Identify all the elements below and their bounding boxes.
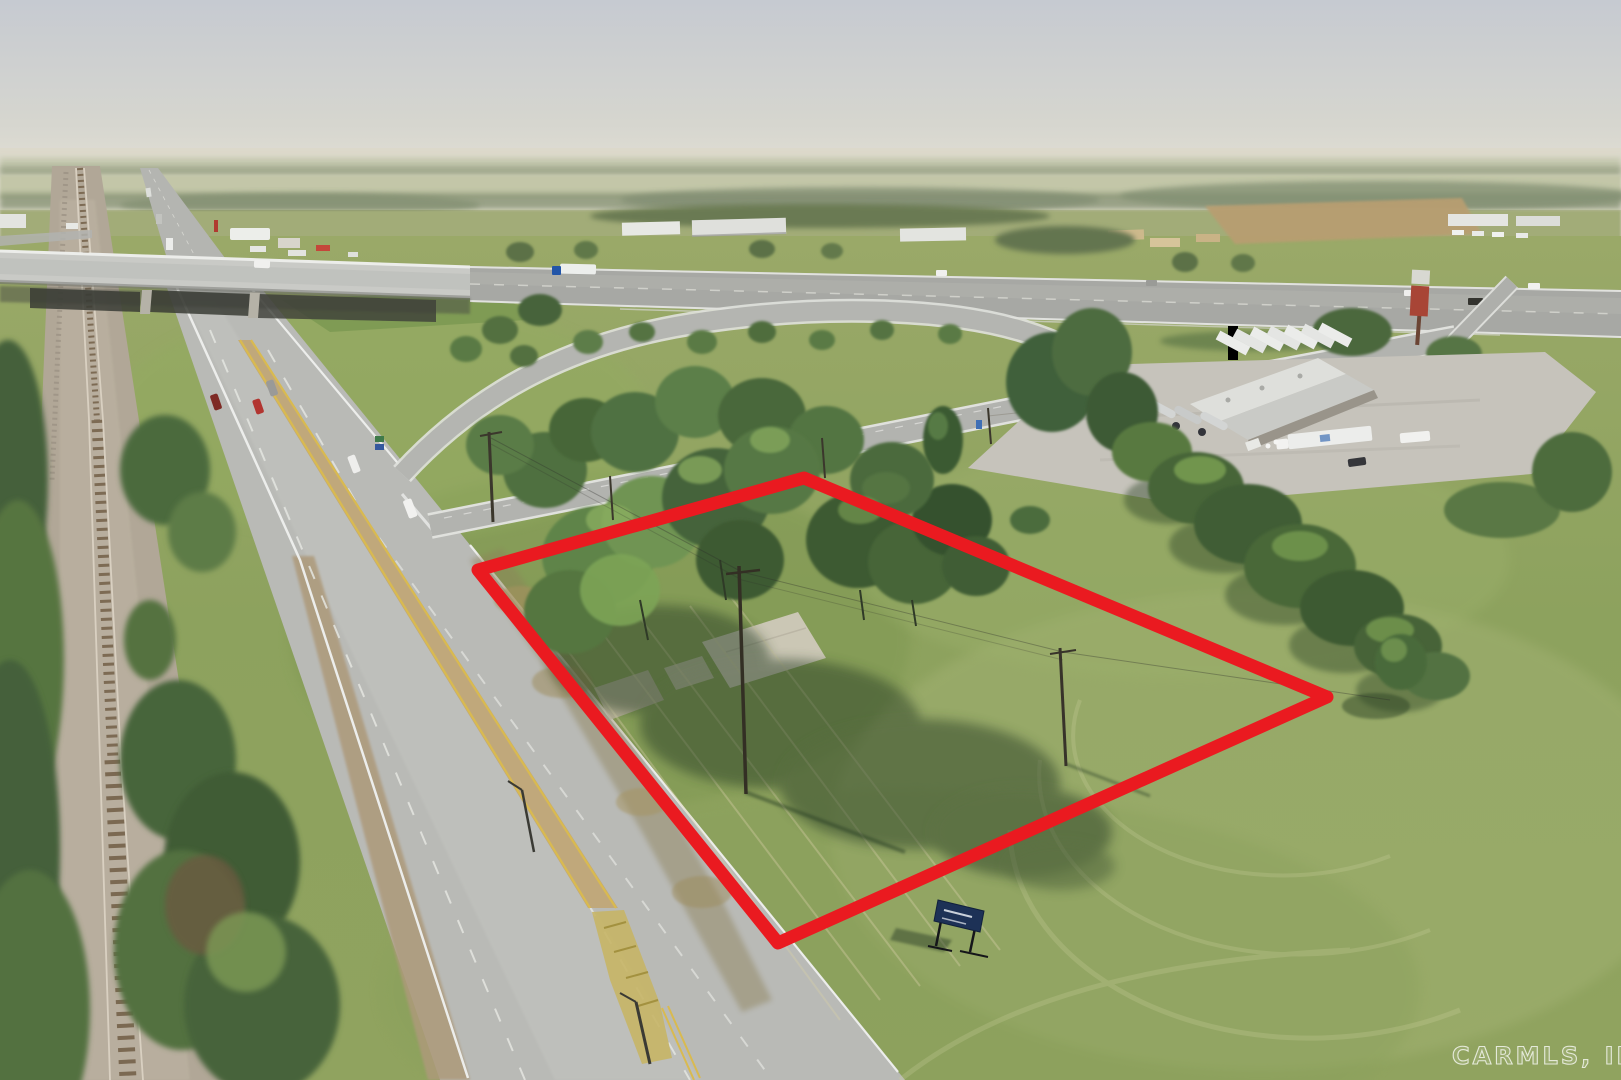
aerial-photo: CARMLS, INC — [0, 0, 1621, 1080]
watermark: CARMLS, INC — [1452, 1042, 1621, 1070]
depot-sign — [976, 420, 982, 429]
scene: CARMLS, INC — [0, 0, 1621, 1080]
car-on-bridge — [254, 260, 270, 269]
